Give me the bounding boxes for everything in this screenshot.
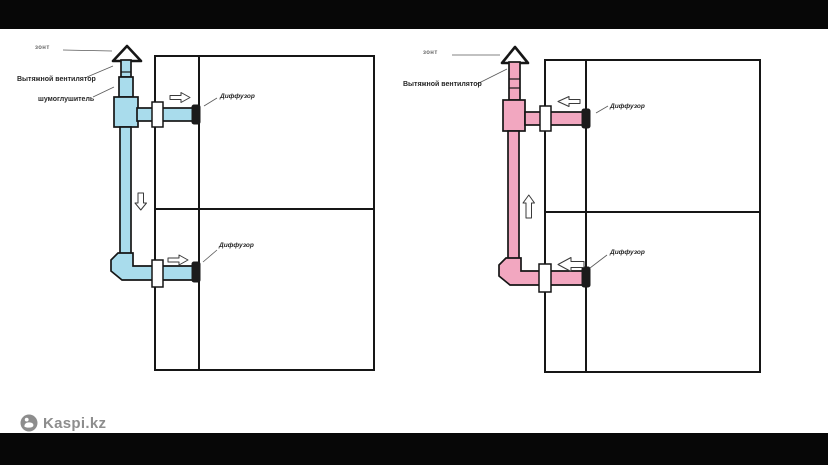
label-diffuser-lower-left: Диффузор: [219, 243, 254, 250]
riser-right: [508, 131, 519, 259]
diffuser-upper-right: [582, 109, 590, 128]
upper-branch-left: [137, 108, 195, 121]
building-left: [155, 56, 374, 370]
wall-flange-lower-right: [539, 264, 551, 292]
wall-flange-upper-right: [540, 106, 551, 131]
flow-right-arrow-lower-left-diagram: [168, 255, 188, 265]
flow-down-arrow-left-diagram: [135, 193, 147, 210]
wall-flange-upper-left: [152, 102, 163, 127]
flow-up-arrow-right-diagram: [523, 195, 535, 218]
diffuser-lower-right: [582, 267, 590, 287]
diffuser-lower-left: [192, 262, 200, 282]
label-fan-right: Вытяжной вентилятор: [403, 81, 482, 88]
letterboxed-image: зонт Вытяжной вентилятор шумоглушитель Д…: [0, 0, 828, 465]
flow-left-arrow-lower-right-diagram: [558, 258, 584, 272]
diagram-canvas: зонт Вытяжной вентилятор шумоглушитель Д…: [0, 29, 828, 433]
ventilation-diagrams-svg: [0, 29, 828, 433]
leader-diffuser-upper-right: [596, 106, 608, 113]
leader-silencer-left: [93, 87, 114, 97]
label-fan-left: Вытяжной вентилятор: [17, 76, 96, 83]
fan-stem-right: [509, 62, 520, 100]
wall-flange-lower-left: [152, 260, 163, 287]
tee-body-right: [503, 100, 525, 131]
flow-left-arrow-upper-right-diagram: [558, 97, 580, 107]
hood-cap-left: [113, 46, 141, 61]
label-diffuser-upper-left: Диффузор: [220, 94, 255, 101]
hood-cap-right: [502, 47, 528, 63]
label-diffuser-lower-right: Диффузор: [610, 250, 645, 257]
leader-diffuser-upper-left: [204, 98, 217, 106]
label-hood-left: зонт: [35, 45, 50, 51]
flow-right-arrow-upper-left-diagram: [170, 93, 190, 103]
leader-diffuser-lower-right: [590, 255, 607, 268]
letterbox-top-bar: [0, 0, 828, 29]
silencer-left: [119, 77, 133, 97]
label-silencer-left: шумоглушитель: [38, 96, 94, 103]
upper-branch-right: [525, 112, 584, 125]
building-right: [545, 60, 760, 372]
riser-left: [120, 127, 131, 254]
watermark-text: Kaspi.kz: [43, 415, 106, 432]
kaspi-logo-icon: [20, 414, 38, 432]
label-hood-right: зонт: [423, 50, 438, 56]
building-left-outline: [155, 56, 374, 370]
diffuser-upper-left: [192, 105, 200, 124]
leader-hood-left: [63, 50, 112, 51]
fan-stem-left: [121, 60, 131, 77]
tee-body-left: [114, 97, 138, 127]
label-diffuser-upper-right: Диффузор: [610, 104, 645, 111]
watermark: Kaspi.kz: [20, 414, 106, 432]
building-right-outline: [545, 60, 760, 372]
letterbox-bottom-bar: [0, 433, 828, 465]
leader-diffuser-lower-left: [203, 250, 217, 262]
